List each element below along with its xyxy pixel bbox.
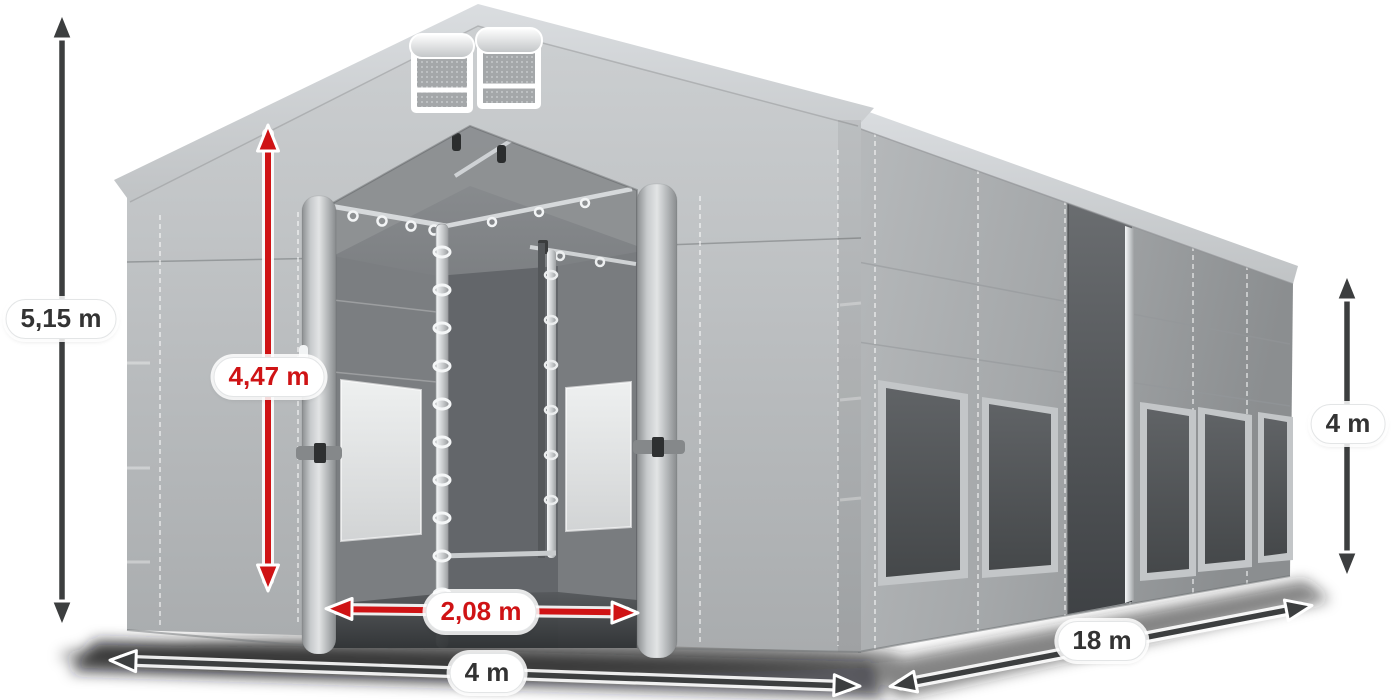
dim-label-front-width: 4 m bbox=[450, 653, 525, 693]
dim-label-total-height: 5,15 m bbox=[6, 299, 117, 339]
vent-roll-right bbox=[476, 28, 542, 53]
interior-left-partition bbox=[333, 256, 437, 648]
side-opening bbox=[1068, 203, 1134, 614]
inner-post-far bbox=[538, 243, 545, 558]
side-opening-pole bbox=[1125, 226, 1134, 603]
dim-label-entrance-width: 2,08 m bbox=[426, 592, 537, 632]
dim-label-side-height: 4 m bbox=[1311, 404, 1386, 444]
product-render-stage: 5,15 m 4,47 m 2,08 m 4 m 18 m 4 m bbox=[0, 0, 1400, 700]
door-strap-buckle-right bbox=[652, 437, 664, 457]
front-opening bbox=[330, 100, 637, 648]
side-wall bbox=[858, 108, 1298, 652]
tent-render bbox=[0, 0, 1400, 700]
side-window-3 bbox=[1140, 402, 1196, 581]
front-right-corner-shade bbox=[838, 120, 861, 652]
dim-label-entrance-height: 4,47 m bbox=[214, 357, 325, 397]
side-window-1 bbox=[878, 380, 968, 586]
gable-vent-right bbox=[476, 28, 542, 106]
inner-post-near bbox=[434, 224, 450, 648]
side-window-2 bbox=[982, 397, 1058, 578]
side-window-4 bbox=[1198, 407, 1252, 572]
vent-roll-left bbox=[410, 34, 474, 58]
interior-window-right bbox=[566, 382, 631, 531]
side-window-5 bbox=[1258, 412, 1293, 563]
interior-window-left bbox=[341, 380, 421, 541]
door-strap-buckle-left bbox=[314, 443, 326, 463]
door-roll-right bbox=[633, 184, 685, 658]
interior-right-partition bbox=[558, 252, 637, 648]
gable-vent-left bbox=[410, 34, 474, 110]
dim-label-side-length: 18 m bbox=[1057, 621, 1146, 661]
door-roll-left bbox=[296, 196, 342, 654]
